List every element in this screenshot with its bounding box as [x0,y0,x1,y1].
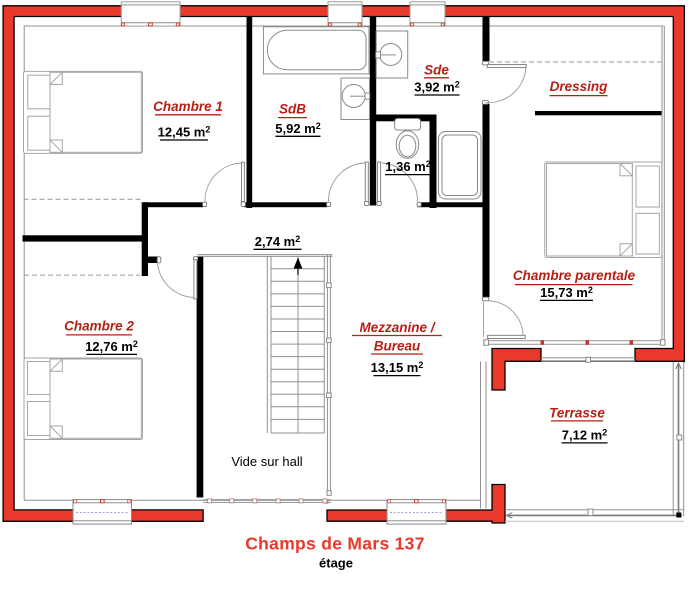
svg-text:Terrasse: Terrasse [549,406,605,421]
svg-text:Chambre 2: Chambre 2 [64,319,134,334]
svg-text:13,15 m2: 13,15 m2 [371,360,424,375]
svg-text:5,92 m2: 5,92 m2 [275,121,321,136]
svg-text:Mezzanine /: Mezzanine / [359,320,435,335]
svg-text:12,76 m2: 12,76 m2 [85,339,138,354]
svg-text:Bureau: Bureau [374,339,421,354]
svg-text:SdB: SdB [279,102,306,117]
svg-text:1,36 m2: 1,36 m2 [385,159,431,174]
svg-text:Champs de Mars 137: Champs de Mars 137 [245,534,425,554]
svg-text:2,74 m2: 2,74 m2 [255,234,301,249]
svg-text:Chambre parentale: Chambre parentale [513,268,636,283]
svg-text:Sde: Sde [424,62,449,77]
svg-text:Chambre 1: Chambre 1 [153,99,223,114]
svg-text:Dressing: Dressing [550,79,609,94]
svg-text:Vide sur hall: Vide sur hall [231,454,302,469]
svg-text:étage: étage [319,556,353,571]
svg-text:12,45 m2: 12,45 m2 [158,125,211,140]
svg-text:3,92 m2: 3,92 m2 [414,80,460,95]
svg-text:7,12 m2: 7,12 m2 [562,428,608,443]
svg-text:15,73 m2: 15,73 m2 [540,285,593,300]
